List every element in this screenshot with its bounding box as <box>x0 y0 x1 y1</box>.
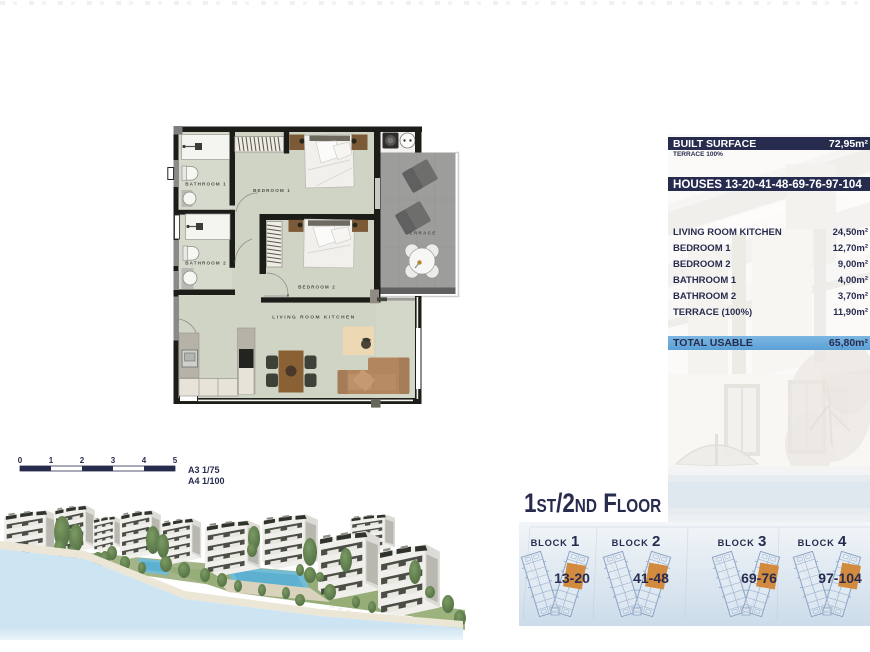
svg-text:5: 5 <box>173 456 178 465</box>
svg-text:0: 0 <box>18 456 23 465</box>
svg-text:4: 4 <box>142 456 147 465</box>
svg-text:BLOCK 2: BLOCK 2 <box>612 533 661 550</box>
svg-text:BATHROOM 2: BATHROOM 2 <box>185 261 227 266</box>
svg-text:69-76: 69-76 <box>741 570 777 586</box>
svg-text:3: 3 <box>111 456 116 465</box>
svg-text:BEDROOM 1: BEDROOM 1 <box>253 188 291 193</box>
svg-text:A3 1/75: A3 1/75 <box>188 465 220 475</box>
svg-text:97-104: 97-104 <box>818 570 862 586</box>
svg-text:2: 2 <box>80 456 85 465</box>
svg-text:41-48: 41-48 <box>633 570 669 586</box>
svg-text:A4 1/100: A4 1/100 <box>188 476 225 486</box>
svg-text:BLOCK 4: BLOCK 4 <box>798 533 847 550</box>
svg-text:BLOCK 1: BLOCK 1 <box>531 533 580 550</box>
svg-text:TERRACE: TERRACE <box>405 231 436 236</box>
svg-text:1: 1 <box>49 456 54 465</box>
svg-text:13-20: 13-20 <box>554 570 590 586</box>
svg-text:BLOCK 3: BLOCK 3 <box>718 533 767 550</box>
svg-text:BEDROOM 2: BEDROOM 2 <box>298 285 336 290</box>
svg-text:LIVING ROOM KITCHEN: LIVING ROOM KITCHEN <box>272 315 355 321</box>
svg-text:BATHROOM 1: BATHROOM 1 <box>185 182 227 187</box>
